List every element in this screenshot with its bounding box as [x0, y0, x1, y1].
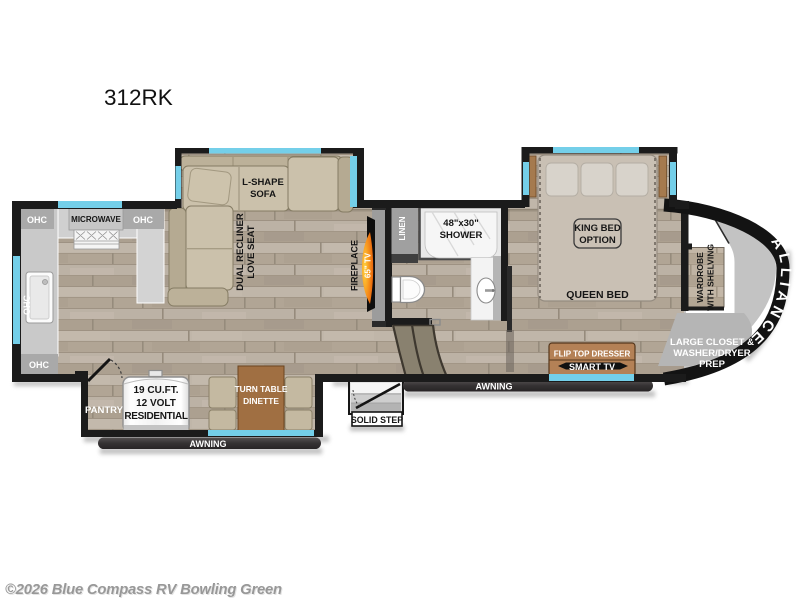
svg-text:TURN TABLE: TURN TABLE [235, 384, 288, 394]
svg-text:OHC: OHC [27, 215, 48, 225]
svg-text:L-SHAPE: L-SHAPE [242, 177, 284, 188]
svg-text:WARDROBE: WARDROBE [695, 252, 705, 303]
svg-text:OHC: OHC [29, 360, 50, 370]
svg-text:MICROWAVE: MICROWAVE [71, 215, 121, 224]
svg-text:OHC: OHC [22, 295, 32, 316]
svg-text:©2026 Blue Compass RV Bowling: ©2026 Blue Compass RV Bowling Green [5, 582, 282, 598]
svg-text:AWNING: AWNING [190, 439, 227, 449]
svg-text:65" TV: 65" TV [364, 252, 373, 278]
svg-text:LARGE CLOSET &: LARGE CLOSET & [670, 337, 754, 348]
svg-text:FIREPLACE: FIREPLACE [350, 240, 360, 291]
svg-text:SHOWER: SHOWER [440, 230, 483, 241]
svg-text:19 CU.FT.: 19 CU.FT. [133, 385, 178, 396]
svg-text:LOVE SEAT: LOVE SEAT [246, 225, 257, 278]
svg-text:12 VOLT: 12 VOLT [136, 398, 176, 409]
svg-text:RESIDENTIAL: RESIDENTIAL [124, 411, 188, 422]
svg-text:312RK: 312RK [104, 85, 173, 110]
svg-text:FLIP TOP DRESSER: FLIP TOP DRESSER [554, 350, 631, 359]
svg-text:KING BED: KING BED [574, 223, 621, 234]
svg-text:DUAL RECLINER: DUAL RECLINER [235, 213, 246, 291]
svg-text:QUEEN BED: QUEEN BED [566, 289, 629, 301]
svg-text:LINEN: LINEN [398, 216, 407, 240]
svg-text:48"x30": 48"x30" [443, 218, 478, 229]
svg-text:DINETTE: DINETTE [243, 396, 279, 406]
svg-text:OHC: OHC [133, 215, 154, 225]
svg-text:SMART TV: SMART TV [569, 362, 615, 372]
svg-text:WITH SHELVING: WITH SHELVING [706, 244, 716, 311]
svg-text:SOFA: SOFA [250, 189, 276, 200]
svg-text:PREP: PREP [699, 359, 726, 370]
svg-text:AWNING: AWNING [476, 382, 513, 392]
svg-text:SOLID STEP: SOLID STEP [351, 415, 403, 425]
svg-text:WASHER/DRYER: WASHER/DRYER [673, 348, 750, 359]
svg-text:OPTION: OPTION [579, 235, 616, 246]
svg-text:PANTRY: PANTRY [85, 405, 124, 416]
